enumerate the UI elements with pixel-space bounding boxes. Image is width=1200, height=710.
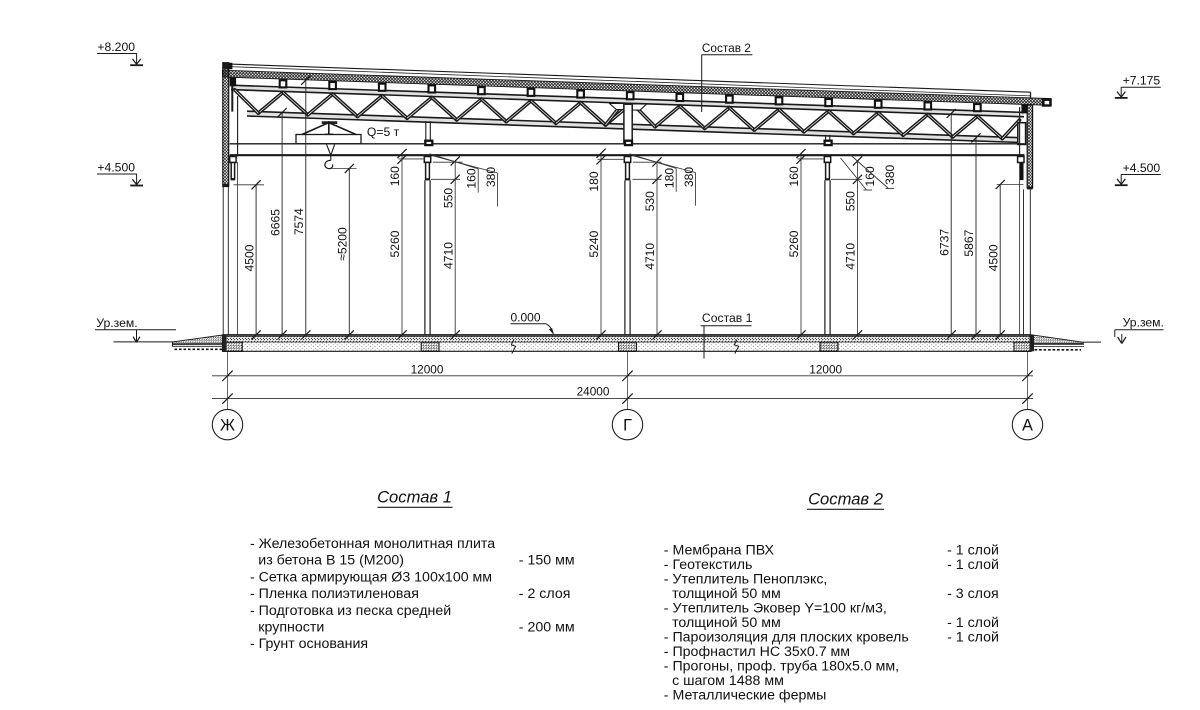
svg-text:5240: 5240 [587, 230, 601, 257]
svg-text:380: 380 [883, 164, 897, 184]
svg-text:Состав 1: Состав 1 [377, 488, 452, 507]
svg-text:6665: 6665 [268, 209, 282, 236]
svg-text:4500: 4500 [986, 244, 1000, 271]
svg-text:5867: 5867 [962, 229, 976, 256]
svg-text:Состав 2: Состав 2 [808, 490, 883, 509]
svg-text:4710: 4710 [441, 242, 455, 269]
svg-text:160: 160 [388, 166, 402, 186]
svg-text:550: 550 [441, 188, 455, 208]
svg-text:5260: 5260 [388, 230, 402, 257]
svg-text:- Пленка полиэтиленовая: - Пленка полиэтиленовая [250, 586, 419, 602]
svg-text:+4.500: +4.500 [97, 161, 135, 175]
svg-text:Q=5 т: Q=5 т [367, 125, 400, 139]
svg-text:- 1 слой: - 1 слой [947, 630, 999, 646]
svg-text:160: 160 [465, 168, 479, 188]
svg-text:4710: 4710 [844, 243, 858, 270]
svg-text:Ж: Ж [220, 416, 235, 434]
svg-text:6737: 6737 [937, 229, 951, 256]
svg-text:380: 380 [484, 167, 498, 187]
svg-text:180: 180 [587, 171, 601, 191]
svg-text:160: 160 [787, 166, 801, 186]
svg-text:Состав 2: Состав 2 [702, 41, 751, 55]
svg-text:530: 530 [643, 191, 657, 211]
svg-text:- Подготовка из песка средней: - Подготовка из песка средней [250, 603, 451, 619]
svg-text:- 1 слой: - 1 слой [947, 557, 999, 573]
svg-text:4710: 4710 [643, 243, 657, 270]
svg-text:Состав 1: Состав 1 [702, 311, 753, 325]
svg-text:- 2 слоя: - 2 слоя [519, 586, 571, 602]
svg-text:- Металлические фермы: - Металлические фермы [664, 688, 827, 704]
svg-text:5260: 5260 [787, 230, 801, 257]
svg-text:Ур.зем.: Ур.зем. [96, 316, 137, 330]
svg-text:0.000: 0.000 [511, 310, 541, 324]
svg-text:≈5200: ≈5200 [336, 227, 350, 261]
svg-text:+7.175: +7.175 [1123, 74, 1161, 88]
svg-text:- Грунт основания: - Грунт основания [250, 636, 368, 652]
svg-text:- Железобетонная монолитная п: - Железобетонная монолитная плита [250, 536, 495, 552]
svg-text:- 150 мм: - 150 мм [519, 553, 575, 569]
svg-text:180: 180 [663, 168, 677, 188]
svg-text:7574: 7574 [292, 208, 306, 235]
svg-text:12000: 12000 [809, 362, 842, 376]
svg-text:Г: Г [623, 416, 632, 434]
svg-text:крупности: крупности [258, 620, 324, 636]
svg-text:- 3 слоя: - 3 слоя [947, 586, 999, 602]
svg-text:+4.500: +4.500 [1123, 161, 1161, 175]
svg-text:12000: 12000 [411, 362, 444, 376]
svg-text:А: А [1022, 416, 1033, 434]
svg-text:- Сетка армирующая Ø3 100х100: - Сетка армирующая Ø3 100х100 мм [250, 569, 492, 585]
svg-text:550: 550 [844, 191, 858, 211]
svg-text:- 200 мм: - 200 мм [519, 620, 575, 636]
svg-text:4500: 4500 [242, 244, 256, 271]
svg-text:Ур.зем.: Ур.зем. [1123, 315, 1164, 329]
svg-text:24000: 24000 [577, 385, 610, 399]
svg-text:из бетона В 15 (М200): из бетона В 15 (М200) [258, 553, 404, 569]
svg-text:+8.200: +8.200 [97, 40, 135, 54]
svg-text:380: 380 [682, 167, 696, 187]
